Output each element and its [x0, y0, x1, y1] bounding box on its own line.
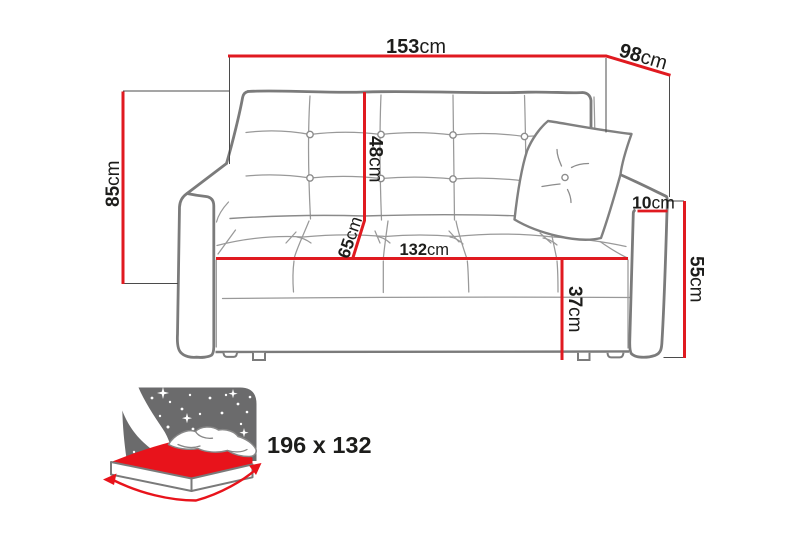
svg-text:85cm: 85cm: [103, 161, 124, 207]
svg-text:132cm: 132cm: [400, 241, 450, 259]
svg-text:48cm: 48cm: [365, 136, 386, 182]
svg-text:10cm: 10cm: [632, 193, 675, 213]
svg-text:37cm: 37cm: [564, 286, 585, 332]
svg-text:55cm: 55cm: [686, 256, 707, 302]
svg-text:153cm: 153cm: [386, 36, 446, 58]
svg-text:196 x 132: 196 x 132: [267, 432, 372, 458]
